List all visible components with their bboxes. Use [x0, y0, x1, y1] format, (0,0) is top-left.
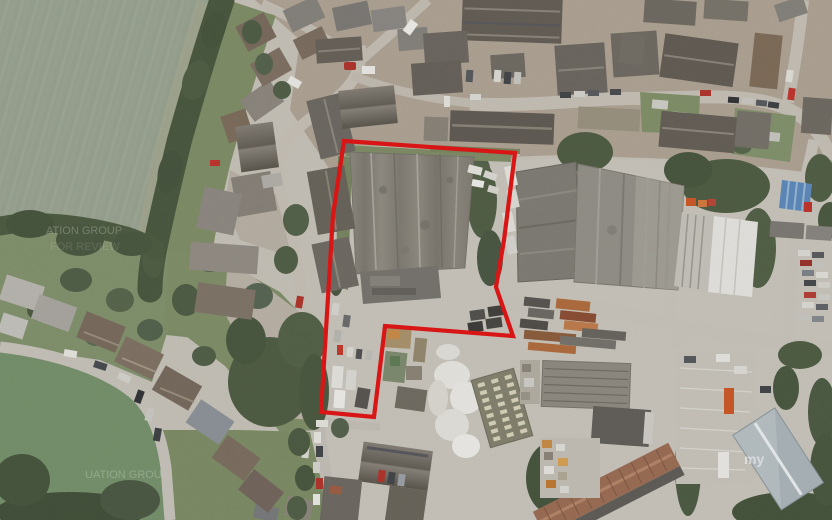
svg-text:my: my [744, 451, 764, 467]
svg-text:ATION GROUP: ATION GROUP [46, 225, 122, 237]
svg-text:FOR REVIEW: FOR REVIEW [50, 241, 120, 253]
svg-text:UATION GROU: UATION GROU [85, 469, 162, 481]
